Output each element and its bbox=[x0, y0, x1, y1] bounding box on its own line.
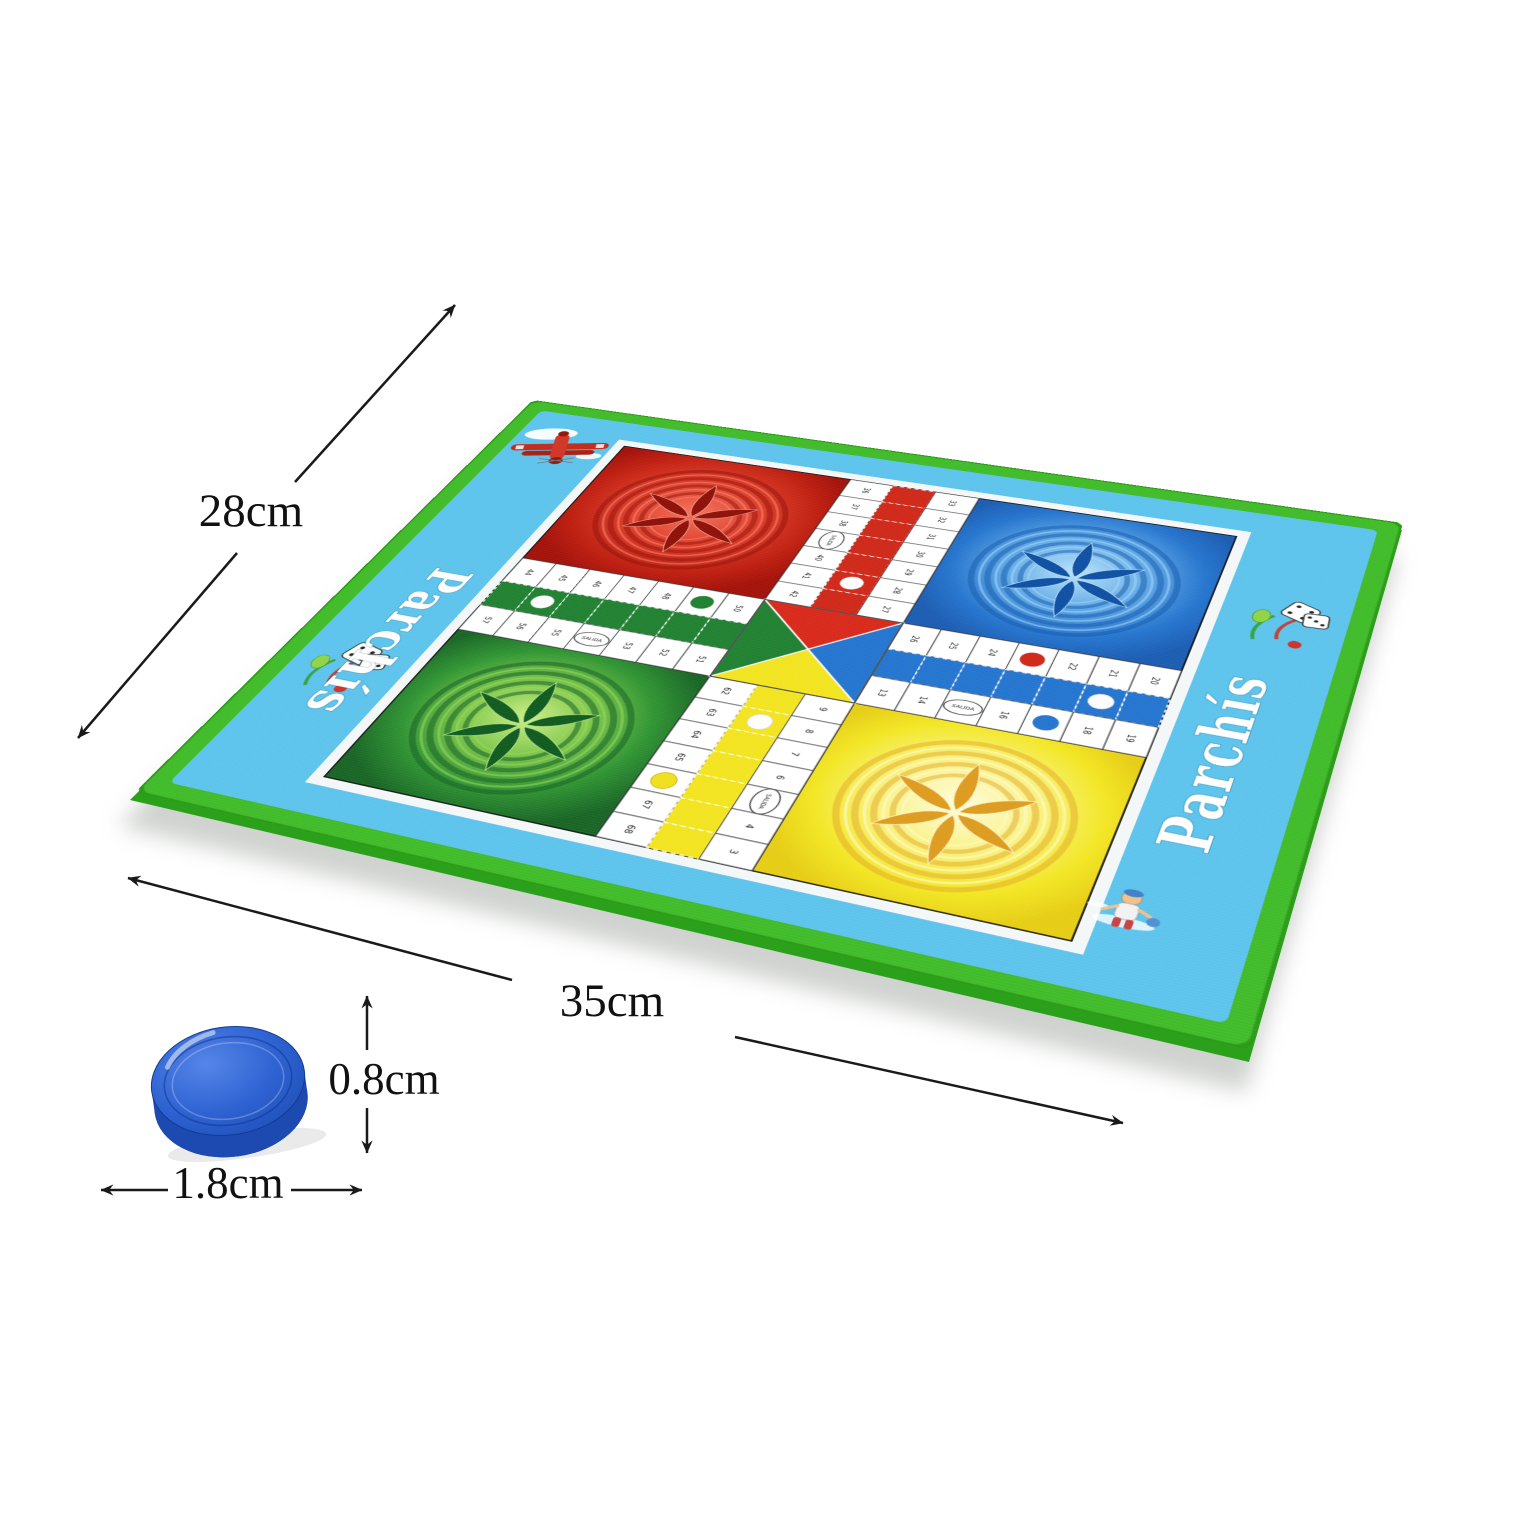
blue-token bbox=[144, 1015, 328, 1170]
dimension-label-28cm: 28cm bbox=[199, 485, 303, 537]
annotation-layer: 28cm 35cm 0.8cm 1.8cm bbox=[0, 0, 1536, 1532]
dimension-28cm: 28cm bbox=[78, 305, 455, 738]
dimension-label-0-8cm: 0.8cm bbox=[328, 1054, 439, 1104]
product-photo: 3637384041423332313029282762636465676898… bbox=[0, 0, 1536, 1532]
dimension-0-8cm: 0.8cm bbox=[328, 996, 439, 1153]
dimension-label-1-8cm: 1.8cm bbox=[172, 1158, 283, 1208]
dimension-1-8cm: 1.8cm bbox=[101, 1158, 362, 1208]
dimension-label-35cm: 35cm bbox=[560, 975, 664, 1027]
